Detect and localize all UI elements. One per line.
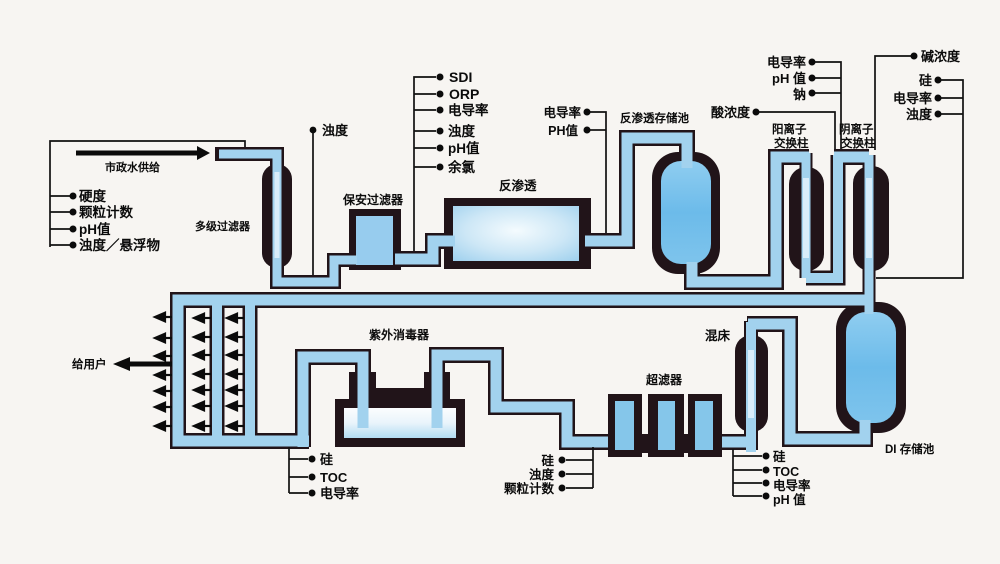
svg-text:电导率: 电导率 <box>773 478 811 493</box>
svg-text:浊度: 浊度 <box>448 123 475 139</box>
svg-text:交换柱: 交换柱 <box>841 136 876 150</box>
svg-text:超滤器: 超滤器 <box>645 372 683 387</box>
svg-text:pH 值: pH 值 <box>773 492 806 507</box>
svg-text:浊度／悬浮物: 浊度／悬浮物 <box>79 237 160 253</box>
svg-text:钠: 钠 <box>793 87 806 102</box>
svg-text:余氯: 余氯 <box>447 159 475 175</box>
svg-text:硅: 硅 <box>773 449 786 464</box>
svg-text:酸浓度: 酸浓度 <box>711 105 751 120</box>
svg-text:TOC: TOC <box>773 465 799 479</box>
svg-text:紫外消毒器: 紫外消毒器 <box>369 327 430 342</box>
svg-text:硅: 硅 <box>320 452 333 467</box>
svg-text:电导率: 电导率 <box>543 105 581 120</box>
svg-text:保安过滤器: 保安过滤器 <box>342 192 404 207</box>
svg-text:电导率: 电导率 <box>893 91 932 106</box>
svg-text:电导率: 电导率 <box>448 102 489 118</box>
svg-text:硅: 硅 <box>541 453 554 468</box>
svg-text:pH值: pH值 <box>448 140 480 156</box>
svg-text:市政水供给: 市政水供给 <box>105 160 160 174</box>
svg-text:pH值: pH值 <box>79 221 111 237</box>
svg-text:反渗透: 反渗透 <box>499 178 537 193</box>
svg-text:硅: 硅 <box>919 73 932 88</box>
svg-text:电导率: 电导率 <box>320 486 359 501</box>
svg-text:DI 存储池: DI 存储池 <box>885 442 935 456</box>
svg-text:pH 值: pH 值 <box>772 71 806 86</box>
svg-text:PH值: PH值 <box>548 123 578 138</box>
svg-text:浊度: 浊度 <box>529 467 555 482</box>
svg-text:电导率: 电导率 <box>767 55 806 70</box>
svg-text:阴离子: 阴离子 <box>839 122 874 136</box>
svg-text:颗粒计数: 颗粒计数 <box>79 204 133 220</box>
svg-text:硬度: 硬度 <box>79 188 106 204</box>
svg-text:多级过滤器: 多级过滤器 <box>195 219 251 233</box>
svg-text:混床: 混床 <box>705 328 731 343</box>
svg-text:碱浓度: 碱浓度 <box>921 49 961 64</box>
svg-text:SDI: SDI <box>449 69 472 85</box>
svg-text:ORP: ORP <box>449 86 479 102</box>
svg-text:TOC: TOC <box>320 470 348 485</box>
svg-text:浊度: 浊度 <box>322 123 349 138</box>
svg-text:反渗透存储池: 反渗透存储池 <box>620 111 689 125</box>
svg-text:给用户: 给用户 <box>72 357 107 371</box>
svg-text:交换柱: 交换柱 <box>774 136 809 150</box>
svg-text:阳离子: 阳离子 <box>772 122 807 136</box>
svg-text:浊度: 浊度 <box>906 107 933 122</box>
svg-text:颗粒计数: 颗粒计数 <box>504 481 555 496</box>
